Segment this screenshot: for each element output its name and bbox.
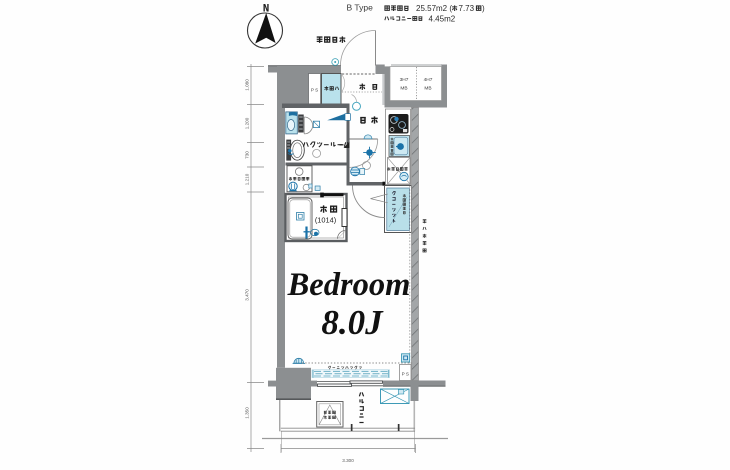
svg-text:MB: MB	[400, 86, 407, 92]
svg-text:8.0J: 8.0J	[321, 303, 384, 342]
svg-text:25.57m2 (: 25.57m2 (	[416, 4, 452, 13]
svg-text:Bedroom: Bedroom	[287, 267, 411, 303]
svg-text:P S: P S	[311, 88, 318, 93]
svg-text:MB: MB	[424, 86, 431, 92]
svg-text:P S: P S	[402, 372, 409, 377]
svg-text:3.300: 3.300	[342, 458, 354, 463]
svg-text:4.45m2: 4.45m2	[429, 15, 456, 24]
svg-text:B Type: B Type	[347, 2, 374, 12]
svg-text:1.200: 1.200	[245, 117, 250, 129]
svg-text:): )	[482, 4, 485, 13]
svg-text:3H7: 3H7	[400, 77, 409, 83]
svg-text:7.73: 7.73	[459, 4, 475, 13]
svg-text:1.210: 1.210	[245, 173, 250, 185]
svg-text:730: 730	[245, 151, 250, 159]
svg-text:1.350: 1.350	[245, 407, 250, 419]
svg-text:3.470: 3.470	[245, 289, 250, 301]
svg-text:N: N	[263, 4, 270, 16]
svg-text:4H7: 4H7	[424, 77, 433, 83]
svg-text:1.080: 1.080	[245, 79, 250, 91]
svg-text:(1014): (1014)	[315, 216, 336, 225]
